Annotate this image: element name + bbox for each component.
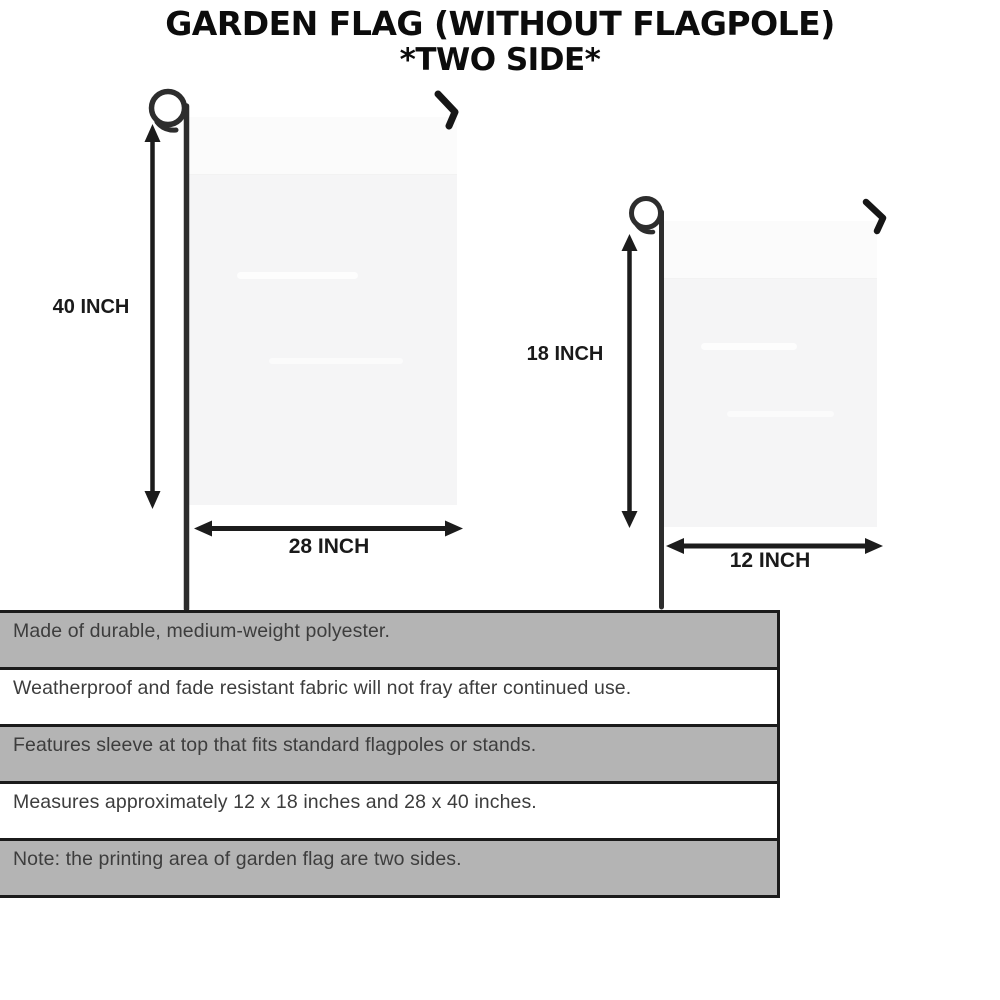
- large-flagpole-loop-tail: [157, 122, 176, 130]
- feature-row-material: Made of durable, medium-weight polyester…: [0, 610, 780, 670]
- small-flagpole-loop-tail: [637, 225, 653, 232]
- large-width-arrowhead-left: [194, 521, 212, 537]
- large-flag-width-label: 28 INCH: [244, 535, 414, 559]
- small-flagpole-loop: [632, 199, 661, 228]
- feature-list: Made of durable, medium-weight polyester…: [0, 610, 780, 898]
- product-infographic: GARDEN FLAG (WITHOUT FLAGPOLE) *TWO SIDE…: [0, 0, 1000, 1000]
- small-garden-flag: [662, 221, 877, 527]
- fabric-crease: [237, 272, 358, 279]
- large-height-arrowhead-bottom: [145, 491, 161, 509]
- title-line-1: GARDEN FLAG (WITHOUT FLAGPOLE): [0, 6, 1000, 43]
- feature-row-note: Note: the printing area of garden flag a…: [0, 838, 780, 898]
- large-height-arrowhead-top: [145, 124, 161, 142]
- large-flag-height-label: 40 INCH: [36, 296, 146, 319]
- small-flag-sleeve: [662, 221, 877, 279]
- feature-row-sleeve: Features sleeve at top that fits standar…: [0, 724, 780, 784]
- large-flag-sleeve: [189, 117, 457, 175]
- large-width-arrowhead-right: [445, 521, 463, 537]
- large-flagpole-loop: [152, 92, 185, 125]
- fabric-crease: [727, 411, 835, 417]
- small-height-arrowhead-top: [622, 234, 638, 251]
- title-line-2: *TWO SIDE*: [0, 43, 1000, 78]
- small-width-arrowhead-left: [666, 538, 684, 554]
- small-height-arrowhead-bottom: [622, 511, 638, 528]
- small-flag-width-label: 12 INCH: [685, 549, 855, 573]
- fabric-crease: [269, 358, 403, 364]
- large-garden-flag: [189, 117, 457, 505]
- feature-row-weatherproof: Weatherproof and fade resistant fabric w…: [0, 667, 780, 727]
- small-width-arrowhead-right: [865, 538, 883, 554]
- feature-row-measures: Measures approximately 12 x 18 inches an…: [0, 781, 780, 841]
- fabric-crease: [701, 343, 798, 350]
- small-flag-height-label: 18 INCH: [510, 343, 620, 366]
- page-title: GARDEN FLAG (WITHOUT FLAGPOLE) *TWO SIDE…: [0, 6, 1000, 78]
